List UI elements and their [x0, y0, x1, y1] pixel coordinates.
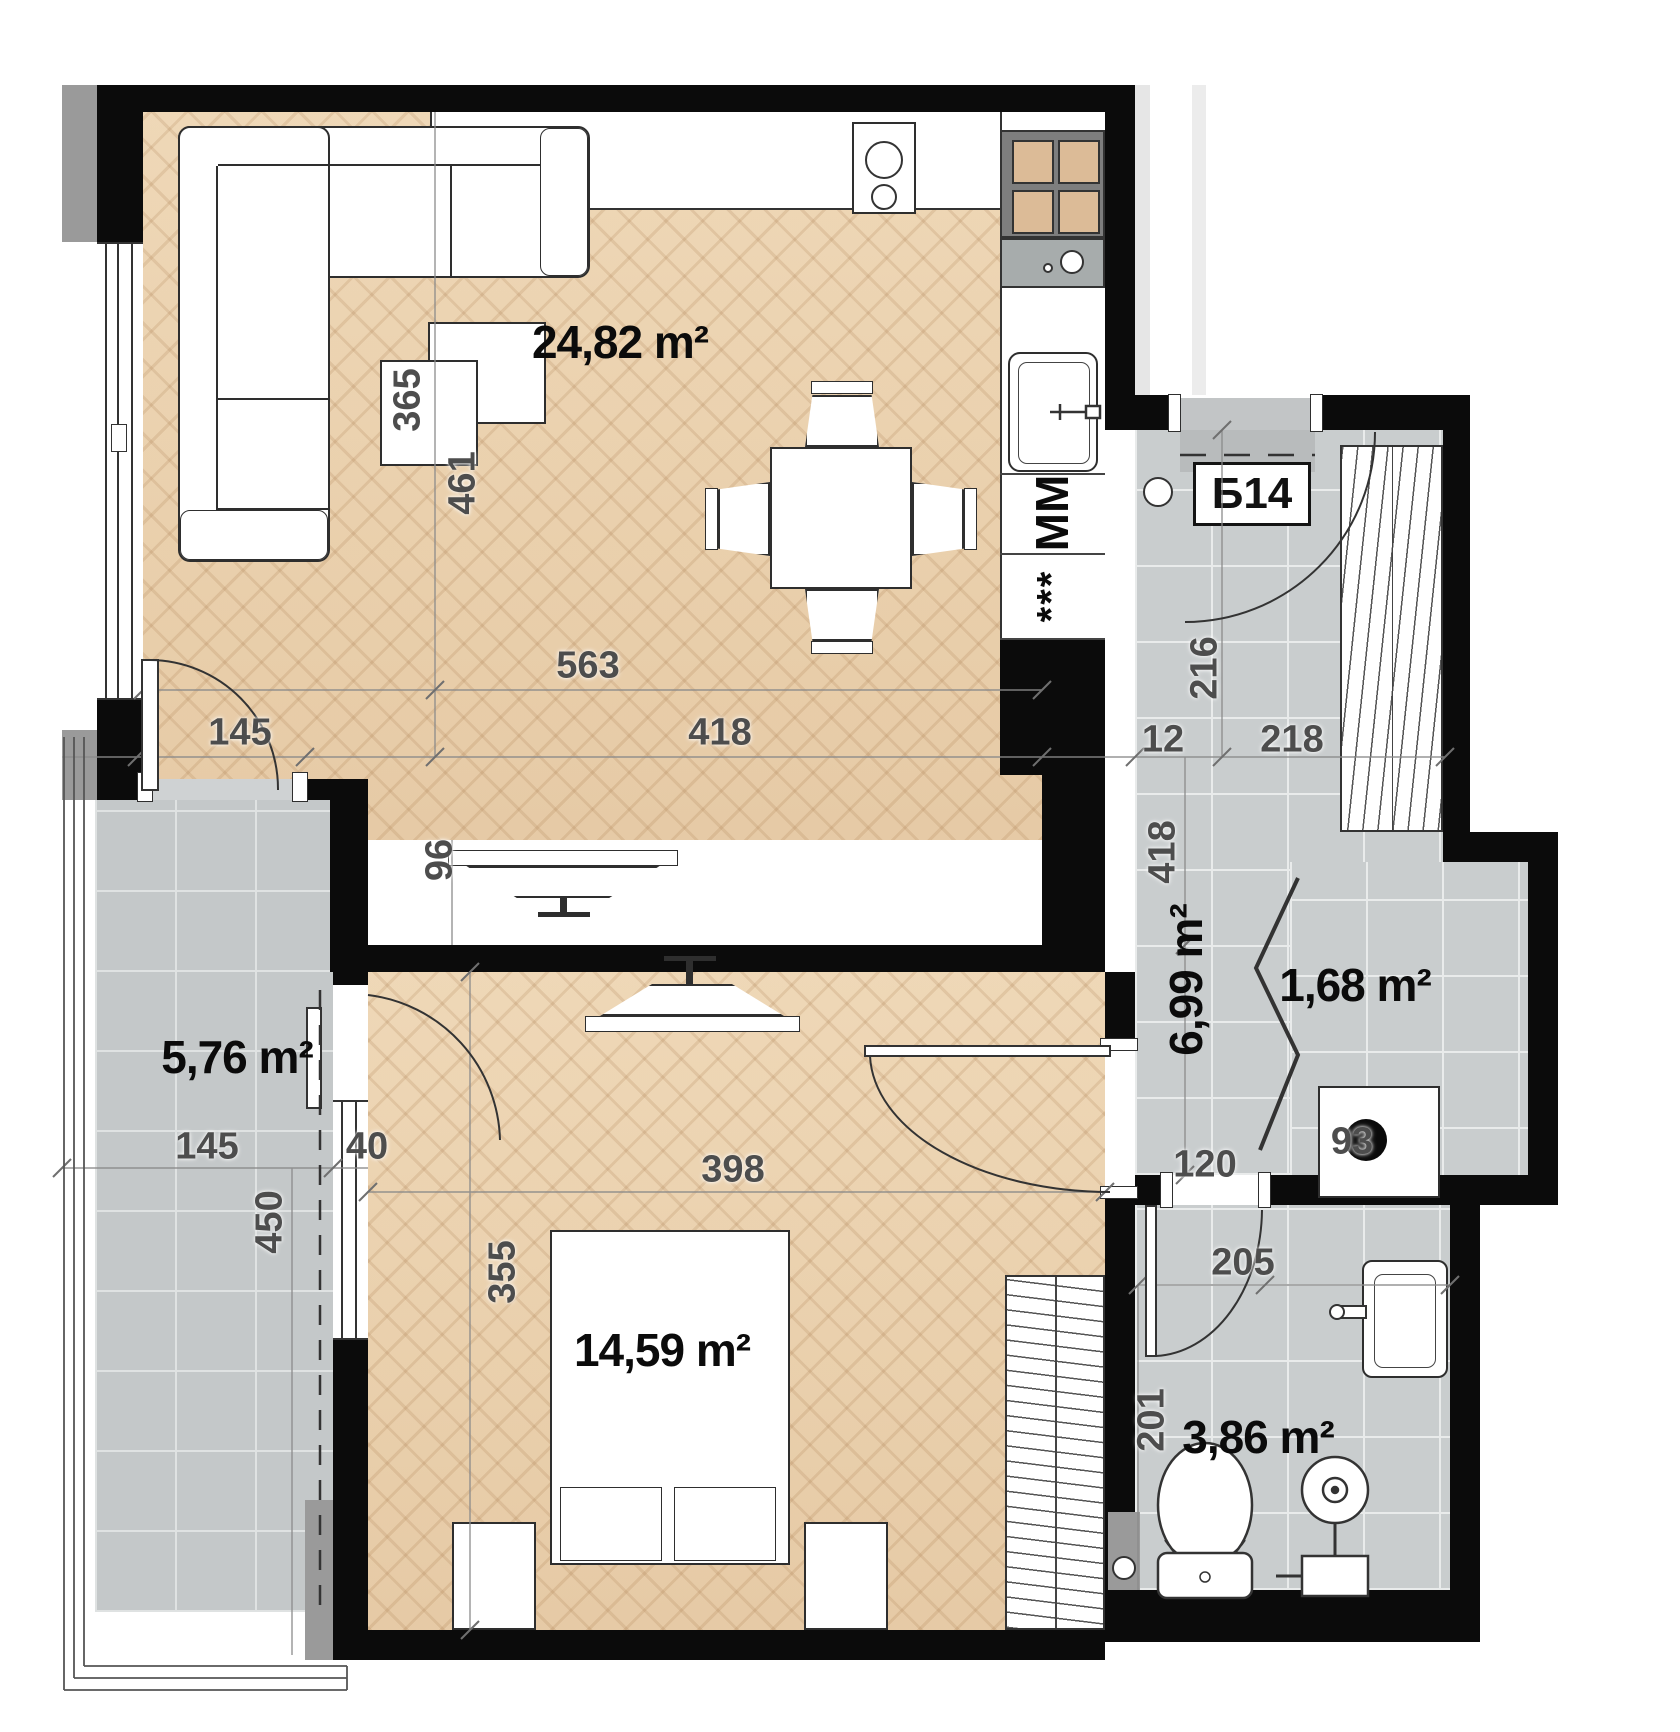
dimension-label: 418	[1142, 820, 1185, 883]
dimension-label: 216	[1184, 636, 1227, 699]
labels-layer: 24,82 m²14,59 m²5,76 m²6,99 m²1,68 m²3,8…	[0, 0, 1680, 1732]
floor-plan: MM ***	[0, 0, 1680, 1732]
area-label-hallway: 6,99 m²	[1159, 904, 1213, 1056]
dimension-label: 218	[1260, 719, 1323, 762]
dimension-label: 145	[208, 712, 271, 755]
dimension-label: 398	[701, 1149, 764, 1192]
dimension-label: 145	[175, 1126, 238, 1169]
dimension-label: 12	[1142, 719, 1184, 762]
dimension-label: 450	[249, 1190, 292, 1253]
area-label-closet: 1,68 m²	[1279, 958, 1431, 1012]
dimension-label: 563	[556, 645, 619, 688]
area-label-bathroom: 3,86 m²	[1182, 1410, 1334, 1464]
dimension-label: 120	[1173, 1144, 1236, 1187]
dimension-label: 40	[346, 1126, 388, 1169]
dimension-label: 355	[482, 1240, 525, 1303]
area-label-balcony: 5,76 m²	[161, 1030, 313, 1084]
dimension-label: 201	[1131, 1388, 1174, 1451]
area-label-bedroom: 14,59 m²	[574, 1323, 750, 1377]
dimension-label: 418	[688, 712, 751, 755]
dimension-label: 93	[1331, 1121, 1373, 1164]
dimension-label: 205	[1211, 1242, 1274, 1285]
dimension-label: 461	[442, 451, 485, 514]
area-label-living-kitchen: 24,82 m²	[532, 315, 708, 369]
dimension-label: 96	[419, 839, 462, 881]
dimension-label: 365	[387, 368, 430, 431]
